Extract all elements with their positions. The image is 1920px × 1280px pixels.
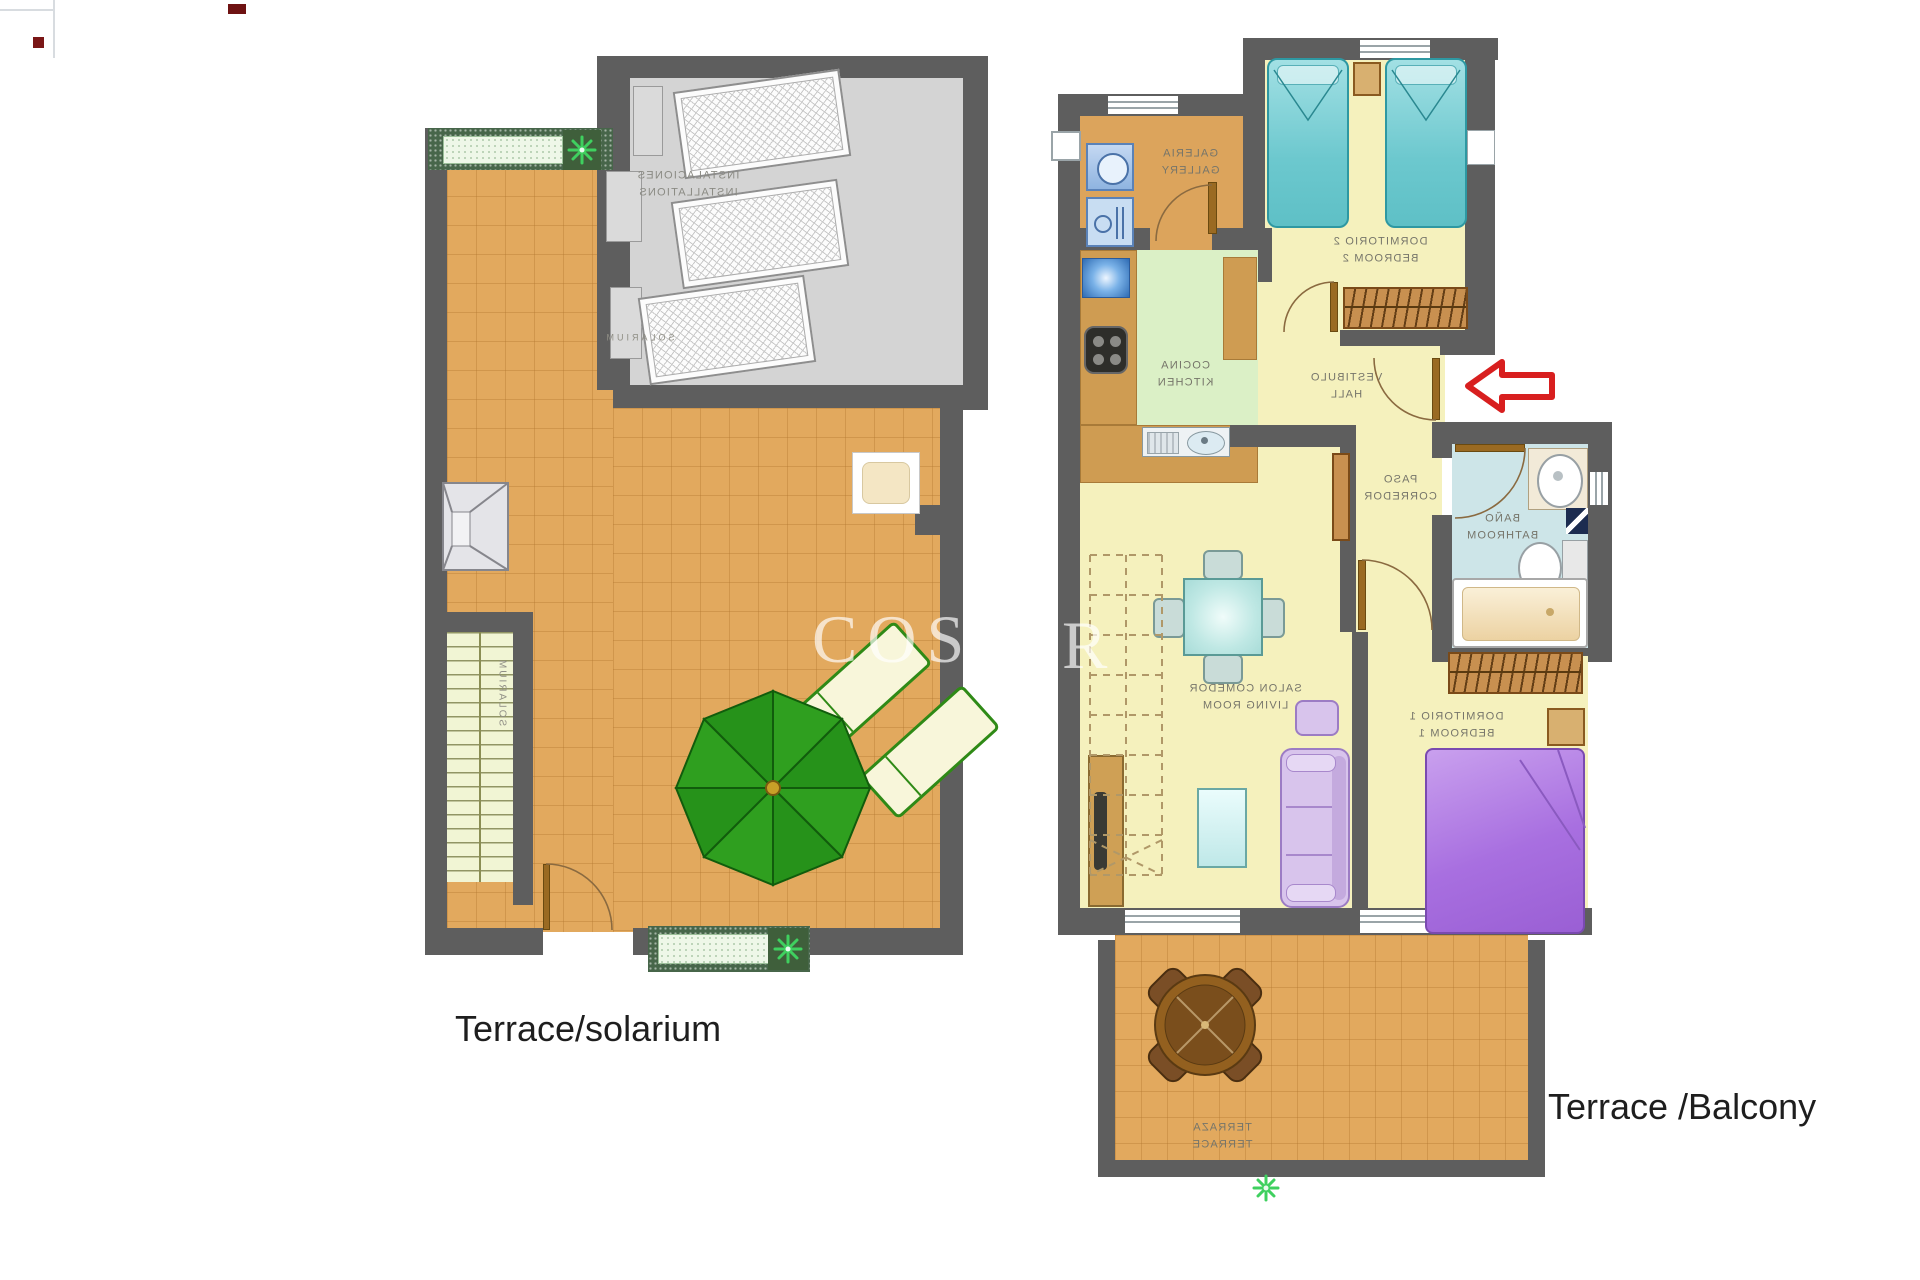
- caption-terrace-solarium: Terrace/solarium: [455, 1008, 721, 1050]
- dining-chair: [1203, 550, 1243, 580]
- wall: [1098, 940, 1115, 1177]
- wall: [1588, 422, 1612, 662]
- label-en: CORREDOR: [1363, 488, 1437, 505]
- label-es: BAÑO: [1466, 511, 1538, 528]
- wall: [425, 928, 543, 955]
- planter-bed: [443, 136, 563, 164]
- nightstand: [1353, 62, 1381, 96]
- wall: [425, 612, 533, 632]
- label-es: COCINA: [1157, 358, 1214, 375]
- label-en: TERRACE: [1192, 1136, 1253, 1153]
- room-label-bedroom1: DORMITORIO 1 BEDROOM 1: [1409, 709, 1504, 742]
- floorplan-image: INSTALACIONES INSTALLATIONS SOLARIUM SOL…: [0, 0, 1920, 1280]
- coffee-table: [1197, 788, 1247, 868]
- watermark-text: COST: [812, 600, 1026, 679]
- wall: [1230, 425, 1356, 447]
- planter-plant-box: [768, 928, 808, 970]
- wardrobe: [1448, 652, 1583, 694]
- label-es: TERRAZA: [1192, 1120, 1253, 1137]
- label-en: INSTALLATIONS: [637, 184, 740, 201]
- room-label-gallery: GALERIA GALLERY: [1161, 146, 1220, 179]
- dining-chair: [1153, 598, 1185, 638]
- room-label-terrace: TERRAZA TERRACE: [1192, 1120, 1253, 1153]
- scan-artifact-dot: [33, 37, 44, 48]
- wall: [1340, 330, 1468, 346]
- watermark-partial-letter: R: [1062, 606, 1117, 685]
- dining-table: [1183, 578, 1263, 656]
- door-leaf: [1432, 358, 1440, 420]
- room-label-corridor: PASO CORREDOR: [1363, 472, 1437, 505]
- label-en: BATHROOM: [1466, 527, 1538, 544]
- bed-single: [1267, 58, 1349, 228]
- dining-chair: [1203, 654, 1243, 684]
- bed-single: [1385, 58, 1467, 228]
- room-label-solarium-top: SOLARIUM: [603, 331, 674, 345]
- towel-radiator: [1566, 508, 1588, 534]
- kitchen-window-light: [1082, 258, 1130, 298]
- doorway-gap: [1150, 228, 1212, 250]
- wall-stub: [915, 505, 962, 535]
- label-es: GALERIA: [1161, 146, 1220, 163]
- room-label-living: SALON COMEDOR LIVING ROOM: [1188, 681, 1301, 714]
- label-es: PASO: [1363, 472, 1437, 489]
- window: [1360, 40, 1430, 58]
- washing-machine: [1086, 143, 1134, 191]
- wall: [1432, 422, 1612, 444]
- door-leaf: [1358, 560, 1366, 630]
- planter-bed: [658, 934, 770, 964]
- entrance-arrow-icon: [1468, 362, 1552, 410]
- vanity: [1528, 448, 1588, 510]
- door-leaf: [1208, 182, 1217, 234]
- wall: [613, 385, 988, 408]
- sofa: [1280, 748, 1350, 908]
- label-en: BEDROOM 1: [1409, 725, 1504, 742]
- label-en: LIVING ROOM: [1188, 697, 1301, 714]
- caption-terrace-balcony: Terrace /Balcony: [1548, 1086, 1816, 1128]
- kitchen-tall-unit: [1223, 257, 1257, 360]
- terrace-floor: [1115, 935, 1528, 1165]
- window: [1108, 96, 1178, 114]
- wall: [1243, 38, 1265, 250]
- ac-unit-box: [1051, 131, 1081, 161]
- room-label-bathroom: BAÑO BATHROOM: [1466, 511, 1538, 544]
- scan-artifact-line-h: [0, 9, 54, 11]
- installation-unit: [633, 86, 663, 156]
- planter-plant-box: [563, 130, 601, 170]
- label-en: KITCHEN: [1157, 374, 1214, 391]
- label-es: DORMITORIO 1: [1409, 709, 1504, 726]
- door-leaf: [1455, 444, 1525, 452]
- bed-double: [1425, 748, 1585, 934]
- sliding-door: [1125, 910, 1240, 933]
- room-label-kitchen: COCINA KITCHEN: [1157, 358, 1214, 391]
- label-es: VESTIBULO: [1310, 370, 1383, 387]
- wall: [1098, 1160, 1545, 1177]
- wall: [1432, 515, 1452, 662]
- room-label-hall: VESTIBULO HALL: [1310, 370, 1383, 403]
- wall: [513, 632, 533, 905]
- room-label-bedroom2: DORMITORIO 2 BEDROOM 2: [1333, 234, 1428, 267]
- scan-artifact-dash: [228, 4, 246, 14]
- wall: [1432, 422, 1452, 458]
- nightstand: [1547, 708, 1585, 746]
- open-door-leaf: [1332, 453, 1350, 541]
- window-box: [1467, 130, 1495, 165]
- wall: [1352, 632, 1368, 935]
- label-es: SALON COMEDOR: [1188, 681, 1301, 698]
- wall: [1465, 38, 1495, 348]
- window: [1590, 472, 1608, 505]
- label-en: BEDROOM 2: [1333, 250, 1428, 267]
- stove: [1084, 326, 1128, 374]
- wall: [425, 128, 447, 955]
- wall: [963, 56, 988, 410]
- door-leaf: [543, 864, 550, 930]
- door-leaf: [1330, 282, 1338, 332]
- floor-mat-inner: [862, 462, 910, 504]
- wall: [1058, 94, 1080, 935]
- room-label-installations: INSTALACIONES INSTALLATIONS: [637, 168, 740, 201]
- label-es: DORMITORIO 2: [1333, 234, 1428, 251]
- label-en: GALLERY: [1161, 162, 1220, 179]
- wall: [1258, 228, 1272, 282]
- room-label-solarium-side: SOLARIUM: [495, 658, 510, 726]
- kitchen-sink: [1142, 427, 1230, 457]
- wall: [1528, 940, 1545, 1177]
- label-es: INSTALACIONES: [637, 168, 740, 185]
- label-en: HALL: [1310, 386, 1383, 403]
- wardrobe: [1343, 287, 1468, 329]
- laundry-sink: [1086, 197, 1134, 247]
- tv: [1094, 792, 1107, 870]
- bathtub: [1452, 578, 1588, 648]
